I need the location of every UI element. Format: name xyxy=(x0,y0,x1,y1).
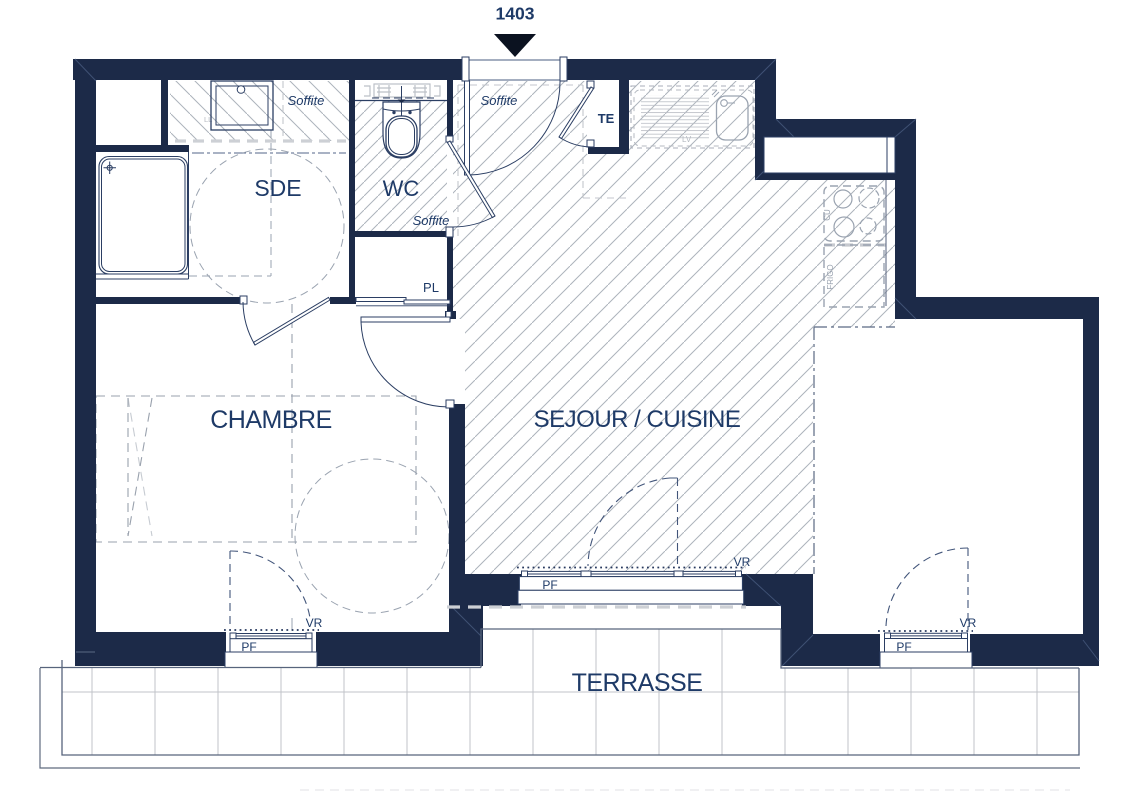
svg-text:VR: VR xyxy=(306,616,323,630)
svg-text:FRIGO: FRIGO xyxy=(826,264,835,289)
svg-text:PF: PF xyxy=(542,578,557,592)
svg-text:Soffite: Soffite xyxy=(481,93,518,108)
svg-text:TERRASSE: TERRASSE xyxy=(572,669,703,697)
svg-text:SEJOUR / CUISINE: SEJOUR / CUISINE xyxy=(534,406,741,433)
svg-text:VR: VR xyxy=(960,616,977,630)
svg-text:PL: PL xyxy=(423,280,439,295)
svg-text:1403: 1403 xyxy=(496,4,535,24)
svg-text:TE: TE xyxy=(598,111,615,126)
svg-text:Soffite: Soffite xyxy=(288,93,325,108)
svg-text:VR: VR xyxy=(734,555,751,569)
svg-text:WC: WC xyxy=(383,176,420,201)
svg-text:LV: LV xyxy=(682,135,692,144)
svg-text:Soffite: Soffite xyxy=(413,213,450,228)
svg-text:PF: PF xyxy=(896,640,911,654)
svg-text:CHAMBRE: CHAMBRE xyxy=(210,406,332,434)
svg-text:SDE: SDE xyxy=(254,175,301,201)
svg-text:CU: CU xyxy=(823,209,832,221)
svg-text:PF: PF xyxy=(241,640,256,654)
